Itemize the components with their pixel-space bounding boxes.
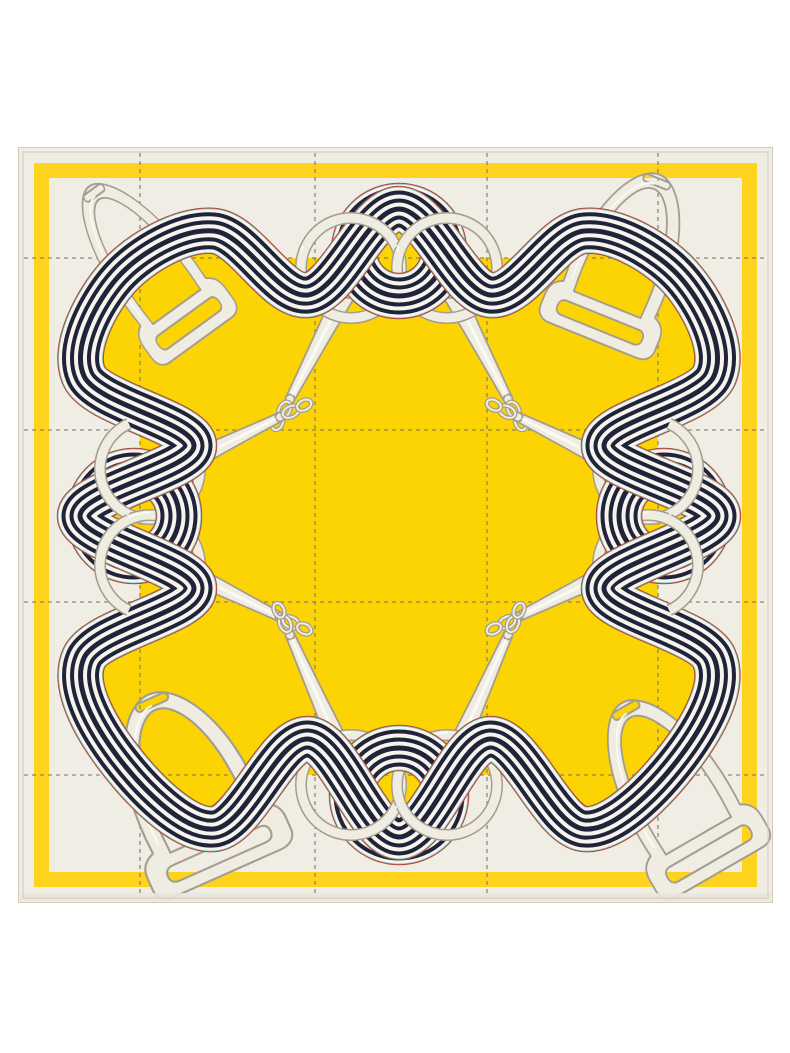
product-photo: Product photograph of a square silk twil… (0, 0, 790, 1053)
bottom-hem-band (20, 893, 771, 901)
scarf (18, 147, 773, 903)
scarf-illustration (18, 147, 773, 903)
